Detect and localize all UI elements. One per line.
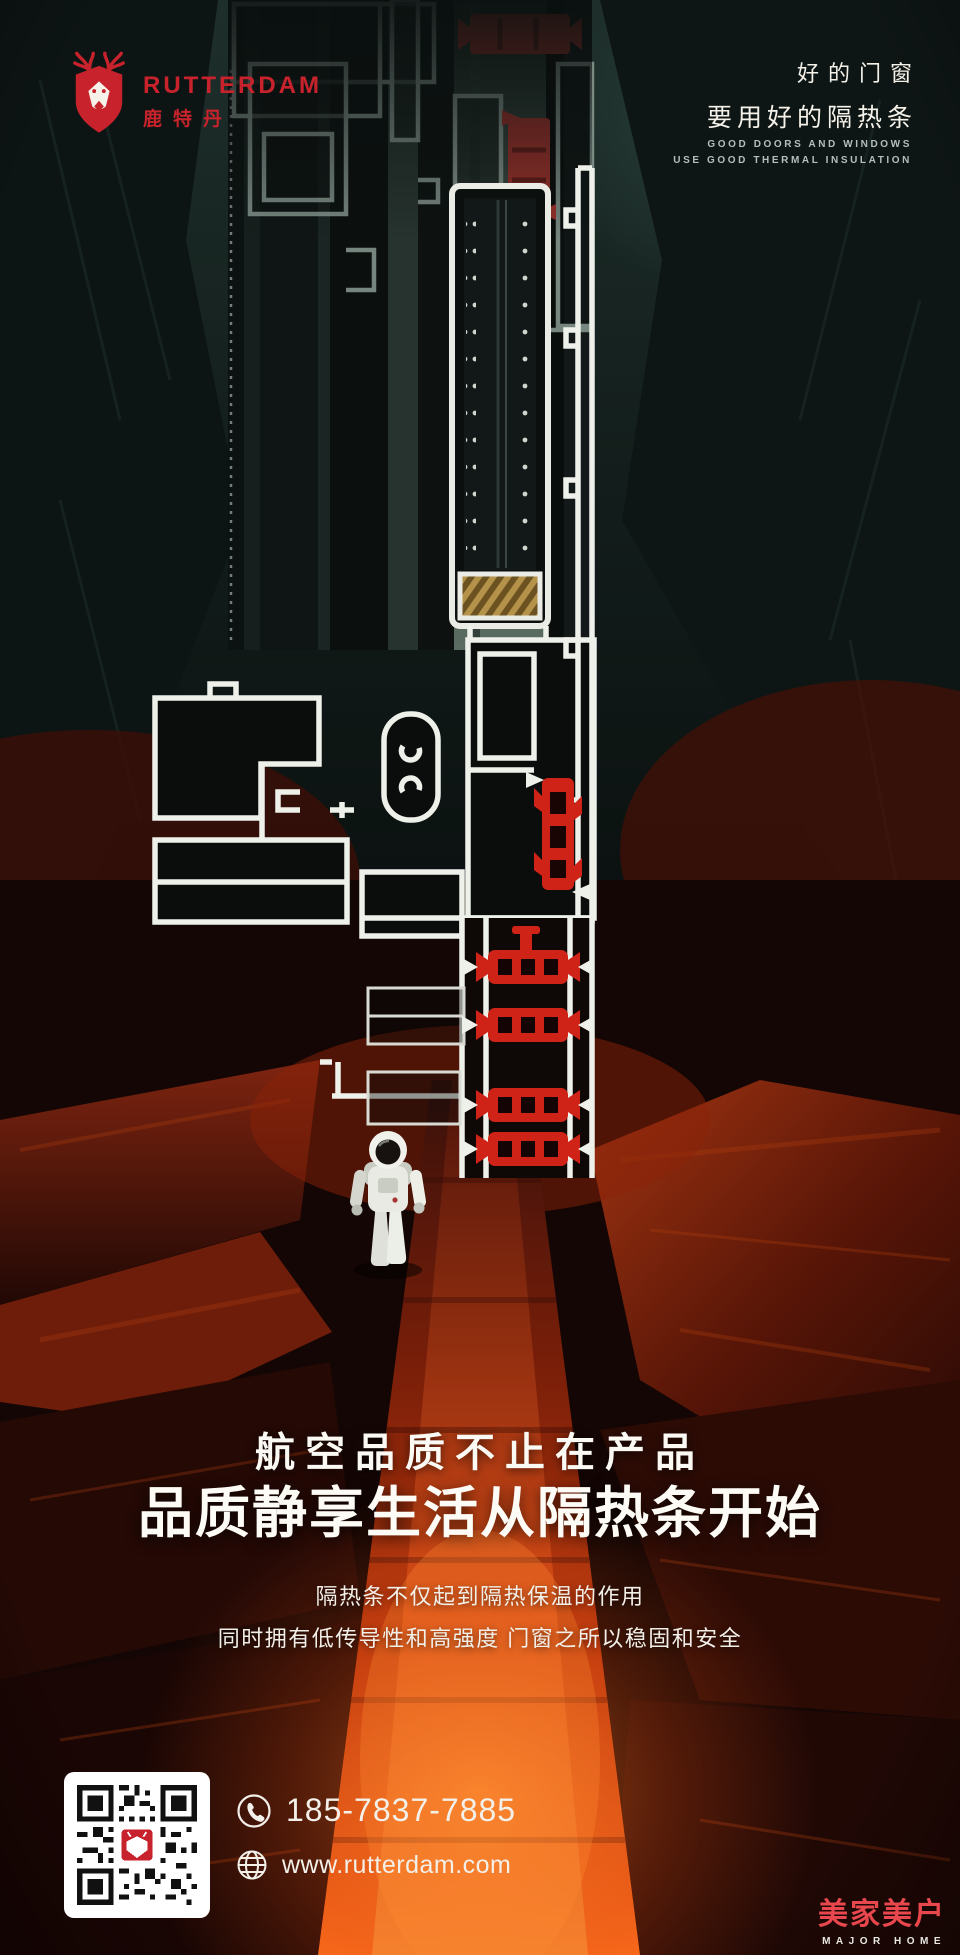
tagline-cn-line2: 要用好的隔热条	[673, 98, 917, 134]
footer-brand: 美家美户 MAJOR HOME	[818, 1889, 946, 1947]
brand-logo: RUTTERDAM 鹿特丹	[70, 50, 322, 136]
vignette	[0, 0, 960, 1955]
contact-block: 185-7837-7885 www.rutterdam.com	[64, 1772, 516, 1918]
headline-main: 品质静享生活从隔热条开始	[0, 1468, 960, 1548]
website-row[interactable]: www.rutterdam.com	[236, 1849, 516, 1881]
tagline-cn-line1: 好的门窗	[673, 56, 921, 88]
phone-row[interactable]: 185-7837-7885	[236, 1792, 516, 1829]
brand-name-cn: 鹿特丹	[143, 104, 322, 131]
tagline-en-line2: USE GOOD THERMAL INSULATION	[673, 155, 912, 166]
deer-shield-icon	[70, 50, 128, 136]
qr-code	[64, 1772, 210, 1918]
tagline-en-line1: GOOD DOORS AND WINDOWS	[673, 139, 912, 150]
footer-brand-cn: 美家美户	[818, 1889, 946, 1933]
body-line1: 隔热条不仅起到隔热保温的作用	[0, 1576, 960, 1618]
phone-number[interactable]: 185-7837-7885	[286, 1792, 516, 1829]
tagline: 好的门窗 要用好的隔热条 GOOD DOORS AND WINDOWS USE …	[673, 56, 912, 166]
brand-name: RUTTERDAM	[143, 72, 322, 100]
globe-icon	[236, 1849, 268, 1881]
body-line2: 同时拥有低传导性和高强度 门窗之所以稳固和安全	[0, 1618, 960, 1660]
poster-canvas: RUTTERDAM 鹿特丹 好的门窗 要用好的隔热条 GOOD DOORS AN…	[0, 0, 960, 1955]
body-copy: 隔热条不仅起到隔热保温的作用 同时拥有低传导性和高强度 门窗之所以稳固和安全	[0, 1576, 960, 1660]
scene-artwork	[0, 0, 960, 1955]
website-url[interactable]: www.rutterdam.com	[282, 1851, 511, 1880]
footer-brand-en: MAJOR HOME	[818, 1936, 946, 1947]
phone-icon	[236, 1793, 272, 1829]
